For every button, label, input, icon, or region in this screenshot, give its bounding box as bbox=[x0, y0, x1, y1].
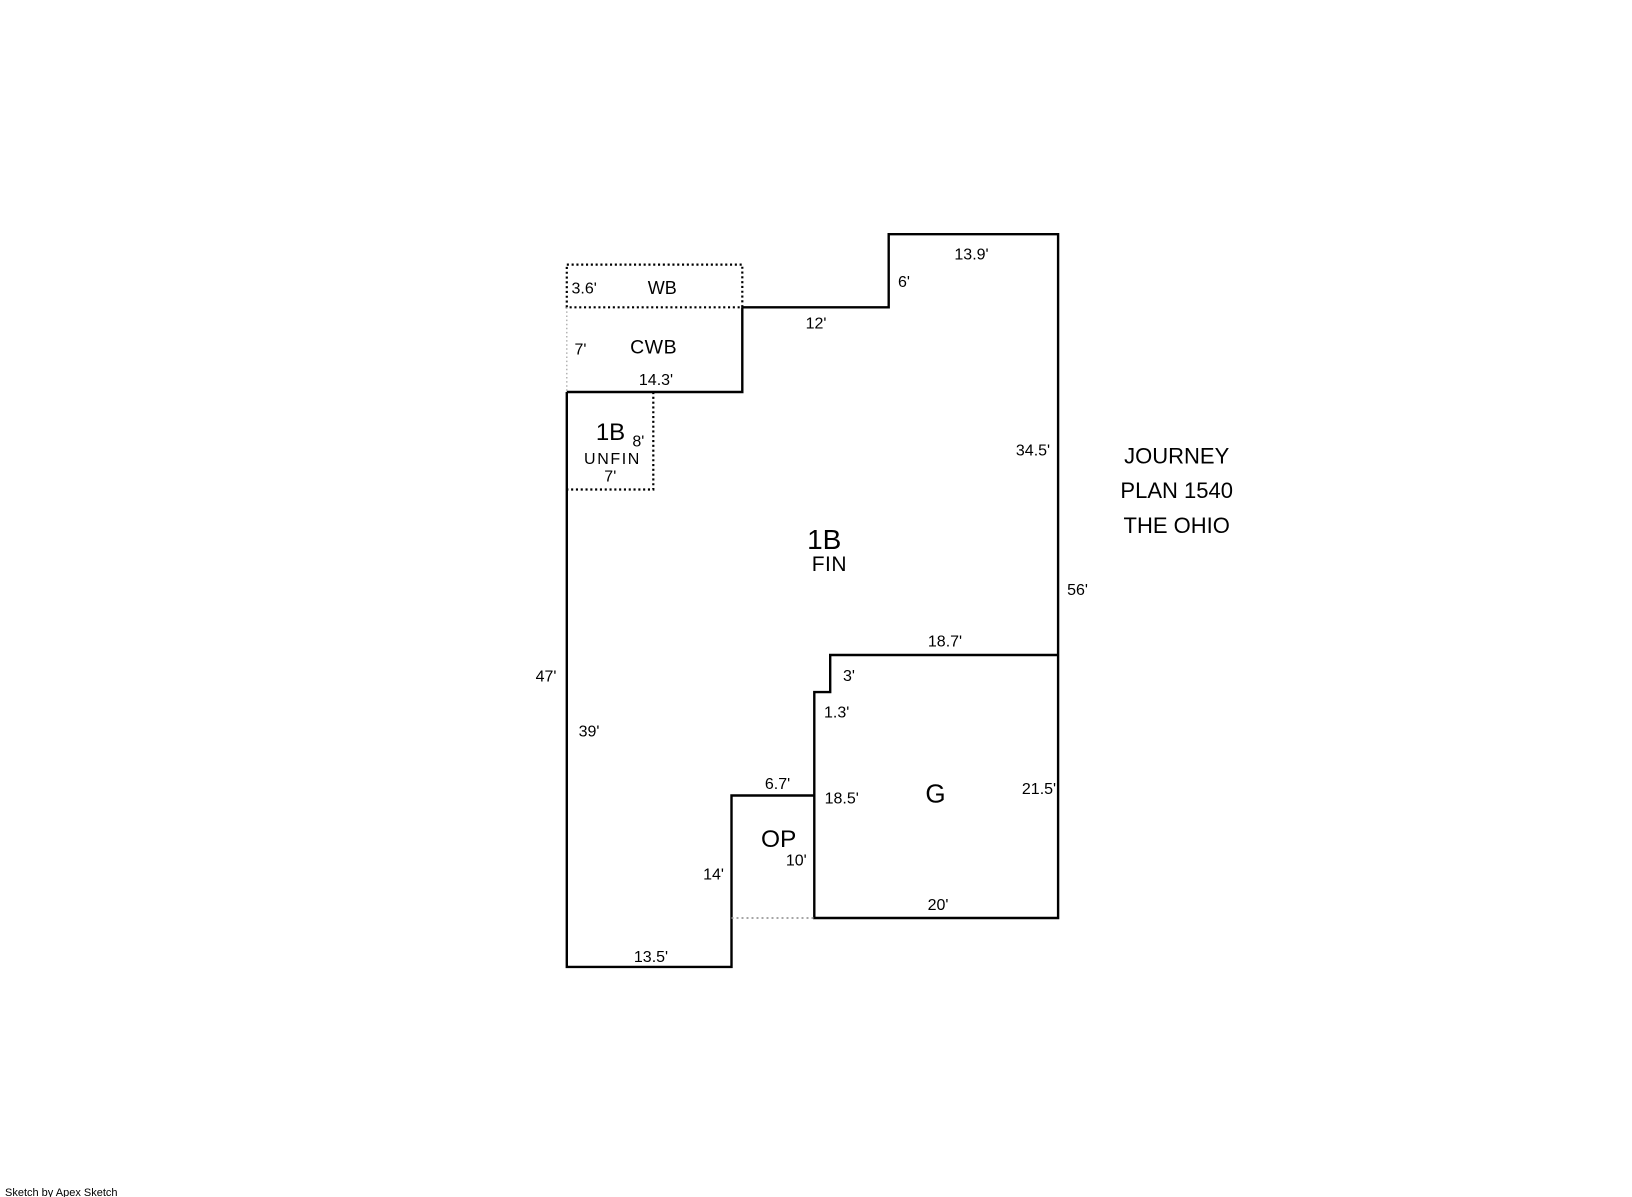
svg-text:13.9': 13.9' bbox=[954, 246, 988, 263]
svg-text:6': 6' bbox=[898, 274, 910, 291]
svg-text:PLAN 1540: PLAN 1540 bbox=[1120, 478, 1233, 503]
svg-text:12': 12' bbox=[806, 316, 827, 333]
svg-text:UNFIN: UNFIN bbox=[584, 451, 641, 468]
svg-text:JOURNEY: JOURNEY bbox=[1124, 443, 1229, 468]
svg-text:21.5': 21.5' bbox=[1022, 781, 1056, 798]
svg-text:1B: 1B bbox=[807, 524, 841, 555]
svg-text:3.6': 3.6' bbox=[572, 281, 597, 298]
svg-text:18.7': 18.7' bbox=[928, 634, 962, 651]
svg-text:34.5': 34.5' bbox=[1016, 443, 1050, 460]
svg-text:7': 7' bbox=[575, 342, 587, 359]
svg-text:FIN: FIN bbox=[812, 553, 847, 576]
svg-text:OP: OP bbox=[761, 826, 796, 853]
svg-text:3': 3' bbox=[843, 668, 855, 685]
svg-text:47': 47' bbox=[536, 669, 557, 686]
svg-text:1B: 1B bbox=[596, 419, 625, 446]
svg-text:56': 56' bbox=[1067, 582, 1088, 599]
svg-text:G: G bbox=[925, 778, 945, 808]
svg-text:14.3': 14.3' bbox=[639, 372, 673, 389]
svg-text:THE OHIO: THE OHIO bbox=[1124, 513, 1230, 538]
svg-text:10': 10' bbox=[786, 852, 807, 869]
svg-text:39': 39' bbox=[579, 723, 600, 740]
svg-text:Sketch by Apex Sketch: Sketch by Apex Sketch bbox=[5, 1187, 118, 1197]
svg-text:20': 20' bbox=[928, 897, 949, 914]
svg-text:18.5': 18.5' bbox=[825, 791, 859, 808]
svg-text:13.5': 13.5' bbox=[634, 949, 668, 966]
svg-text:7': 7' bbox=[604, 469, 616, 486]
svg-text:8': 8' bbox=[632, 434, 644, 451]
svg-text:CWB: CWB bbox=[630, 336, 677, 358]
svg-text:6.7': 6.7' bbox=[765, 776, 790, 793]
svg-text:14': 14' bbox=[703, 867, 724, 884]
svg-text:1.3': 1.3' bbox=[824, 705, 849, 722]
svg-text:WB: WB bbox=[648, 278, 677, 298]
